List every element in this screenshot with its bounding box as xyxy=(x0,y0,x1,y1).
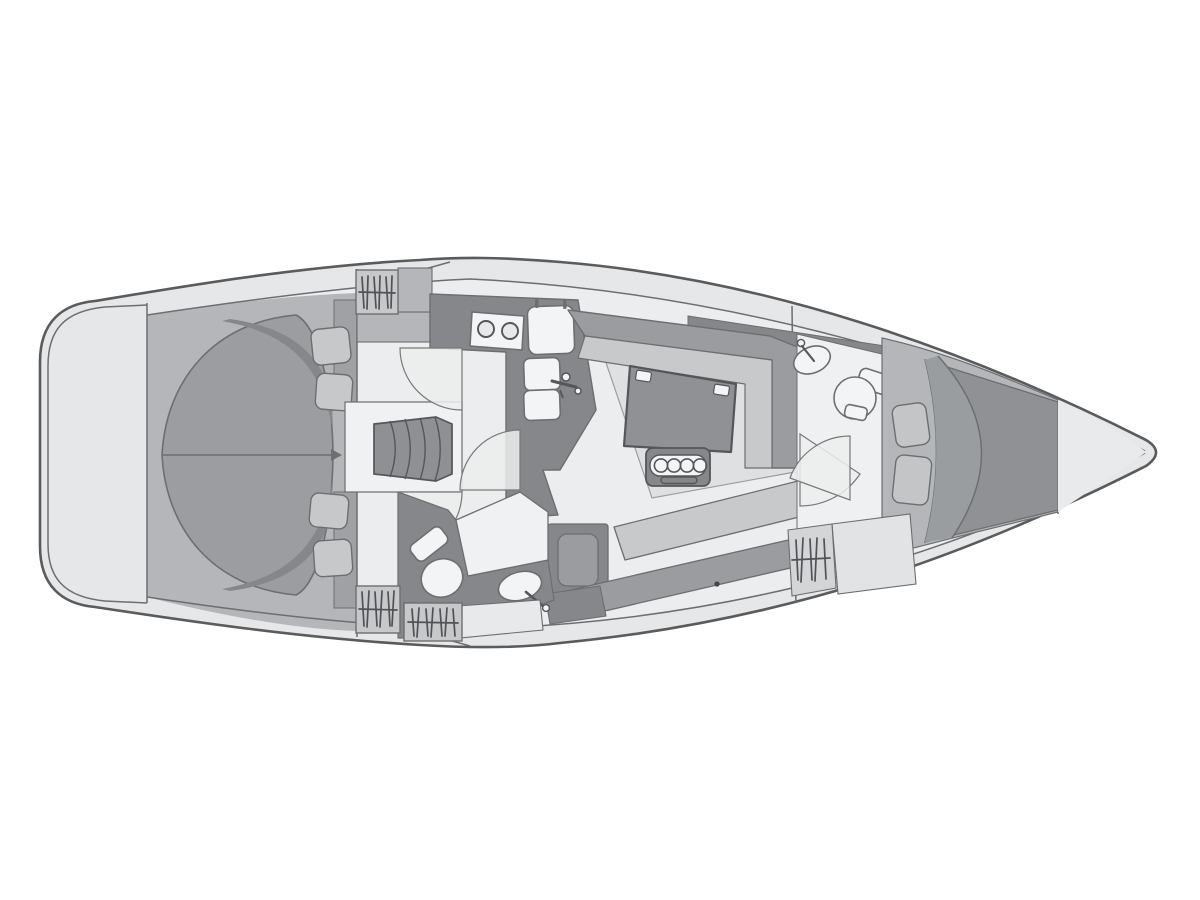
hanging-locker xyxy=(356,270,398,314)
fwd-lower-panel xyxy=(832,514,916,594)
pillow xyxy=(309,492,350,529)
stove-burner xyxy=(478,321,494,337)
nav-seat-cushion xyxy=(558,534,598,586)
pillow xyxy=(891,402,931,448)
hanging-locker xyxy=(356,586,400,633)
bow-locker xyxy=(1058,400,1146,512)
faucet-knob xyxy=(797,339,804,346)
hanging-locker xyxy=(404,603,462,641)
faucet-knob xyxy=(543,605,550,612)
bottle-holder xyxy=(646,448,710,486)
aft-cabin xyxy=(147,293,357,631)
table-leaf-notch xyxy=(713,384,729,396)
fridge-hinge xyxy=(563,300,567,309)
galley-sink-lower xyxy=(523,389,560,420)
hanging-locker xyxy=(788,524,836,596)
table-leaf-notch xyxy=(635,370,651,382)
yacht-floor-plan-page xyxy=(0,0,1200,900)
fridge-hinge xyxy=(535,299,539,308)
galley-sink-upper xyxy=(523,357,560,390)
galley-aft-shelf xyxy=(357,312,430,342)
bench-fitting-dot xyxy=(714,581,719,586)
pillow xyxy=(892,454,933,506)
stove-burner xyxy=(502,323,518,339)
pillow xyxy=(310,326,352,366)
galley-aft-block xyxy=(398,268,432,312)
fridge xyxy=(527,305,575,355)
pillow xyxy=(313,539,353,578)
yacht-floor-plan xyxy=(0,0,1200,900)
